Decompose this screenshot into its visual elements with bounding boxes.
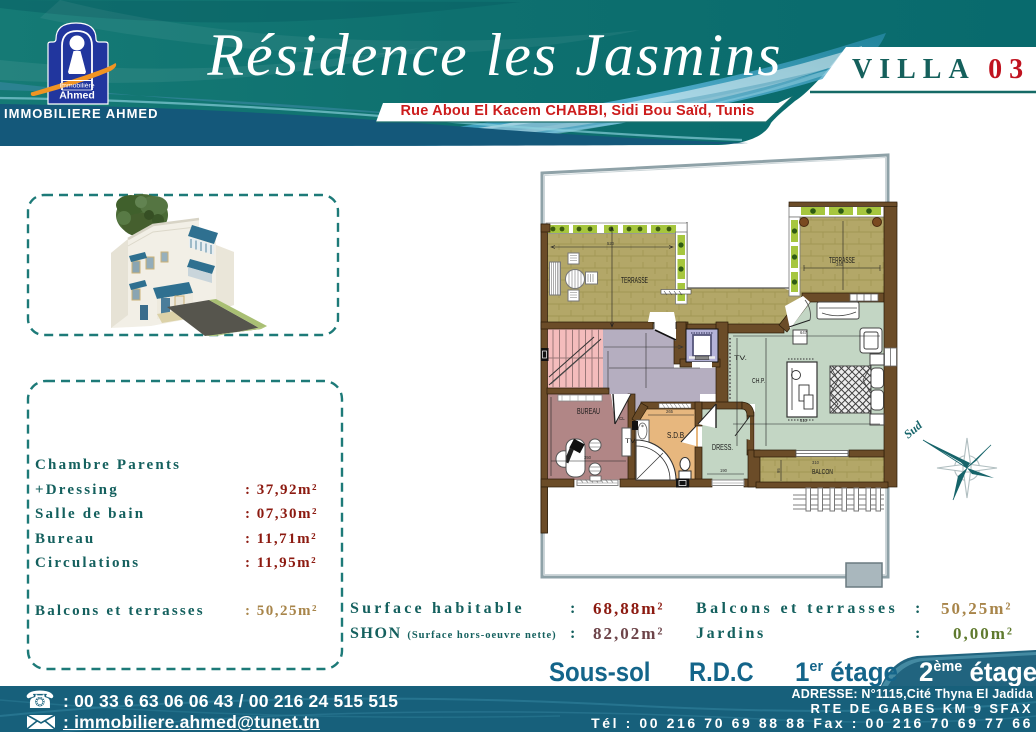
svg-text:TERRASSE: TERRASSE bbox=[621, 276, 648, 285]
svg-text:310: 310 bbox=[812, 460, 820, 465]
svg-text:CH.P.: CH.P. bbox=[752, 376, 765, 385]
svg-text:S.D.B.: S.D.B. bbox=[667, 431, 686, 440]
svg-text:BUREAU: BUREAU bbox=[577, 407, 600, 416]
svg-text:CL: CL bbox=[619, 416, 625, 421]
svg-text:265: 265 bbox=[666, 409, 674, 414]
svg-text:TERRASSE: TERRASSE bbox=[829, 256, 855, 265]
svg-text:350: 350 bbox=[584, 455, 592, 460]
svg-text:DRESS.: DRESS. bbox=[712, 443, 733, 452]
svg-text:TV.: TV. bbox=[734, 355, 747, 362]
svg-text:647: 647 bbox=[800, 330, 808, 335]
svg-text:Immobilière: Immobilière bbox=[59, 83, 94, 90]
svg-text:Ahmed: Ahmed bbox=[59, 90, 95, 102]
svg-text:BALCON: BALCON bbox=[812, 469, 833, 476]
svg-text:520: 520 bbox=[607, 241, 615, 246]
svg-text:TV.: TV. bbox=[625, 438, 637, 445]
svg-text:95: 95 bbox=[776, 468, 781, 473]
svg-text:Sud: Sud bbox=[901, 417, 926, 441]
svg-text:190: 190 bbox=[720, 468, 728, 473]
svg-text:510: 510 bbox=[800, 418, 808, 423]
